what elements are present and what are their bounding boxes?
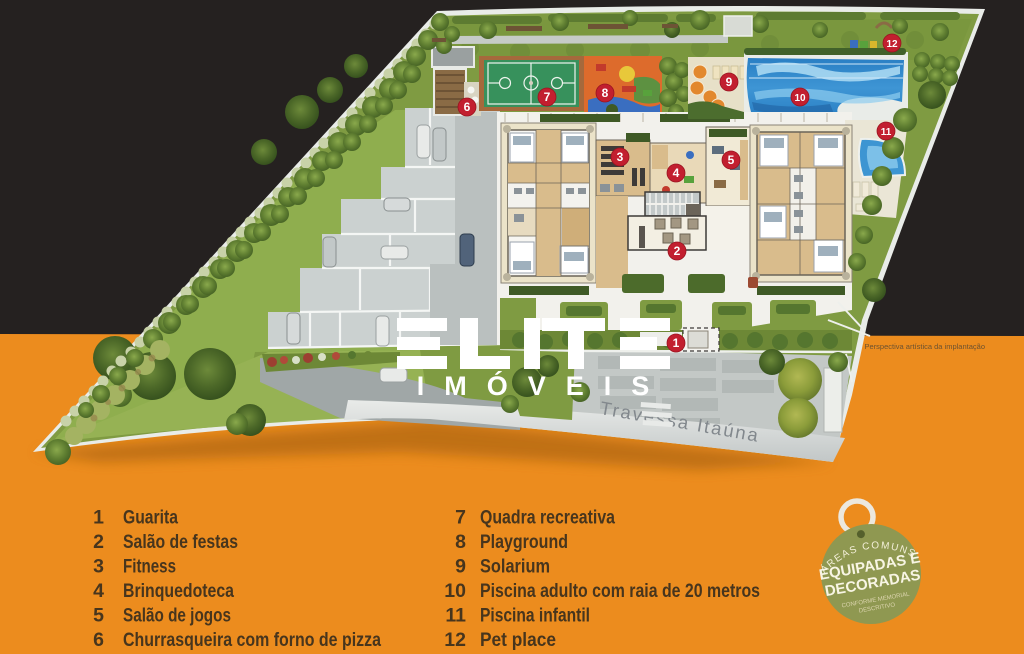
svg-text:10: 10	[794, 93, 806, 104]
svg-text:IMÓVEIS: IMÓVEIS	[417, 370, 670, 401]
svg-text:10: 10	[444, 580, 466, 602]
svg-text:3: 3	[617, 150, 624, 164]
svg-text:Guarita: Guarita	[123, 507, 178, 529]
svg-text:5: 5	[93, 605, 104, 627]
svg-text:2: 2	[674, 244, 681, 258]
svg-text:Perspectiva artística da impla: Perspectiva artística da implantação	[865, 342, 985, 351]
svg-text:4: 4	[673, 166, 680, 180]
svg-text:Pet place: Pet place	[480, 629, 556, 651]
svg-text:1: 1	[673, 336, 680, 350]
svg-text:4: 4	[93, 580, 104, 602]
svg-text:8: 8	[602, 86, 609, 100]
svg-text:Brinquedoteca: Brinquedoteca	[123, 580, 234, 602]
svg-text:12: 12	[886, 39, 898, 50]
svg-text:11: 11	[445, 605, 466, 627]
svg-text:1: 1	[93, 507, 104, 529]
svg-text:7: 7	[544, 90, 551, 104]
svg-text:Playground: Playground	[480, 531, 568, 553]
svg-text:11: 11	[881, 127, 892, 138]
svg-text:Piscina infantil: Piscina infantil	[480, 605, 590, 627]
svg-text:Churrasqueira com forno de piz: Churrasqueira com forno de pizza	[123, 629, 381, 651]
svg-text:6: 6	[464, 100, 471, 114]
svg-text:7: 7	[455, 507, 466, 529]
svg-text:9: 9	[455, 556, 466, 578]
svg-text:Solarium: Solarium	[480, 556, 550, 578]
svg-text:9: 9	[726, 75, 733, 89]
svg-text:6: 6	[93, 629, 104, 651]
svg-text:5: 5	[728, 153, 735, 167]
svg-text:8: 8	[455, 531, 466, 553]
svg-text:Quadra recreativa: Quadra recreativa	[480, 507, 615, 529]
svg-text:3: 3	[93, 556, 104, 578]
svg-text:Salão de jogos: Salão de jogos	[123, 605, 231, 627]
svg-text:Piscina adulto com raia de 20: Piscina adulto com raia de 20 metros	[480, 580, 760, 602]
svg-text:12: 12	[444, 629, 466, 651]
svg-text:2: 2	[93, 531, 104, 553]
svg-text:Fitness: Fitness	[123, 556, 176, 578]
svg-text:Salão de festas: Salão de festas	[123, 531, 238, 553]
